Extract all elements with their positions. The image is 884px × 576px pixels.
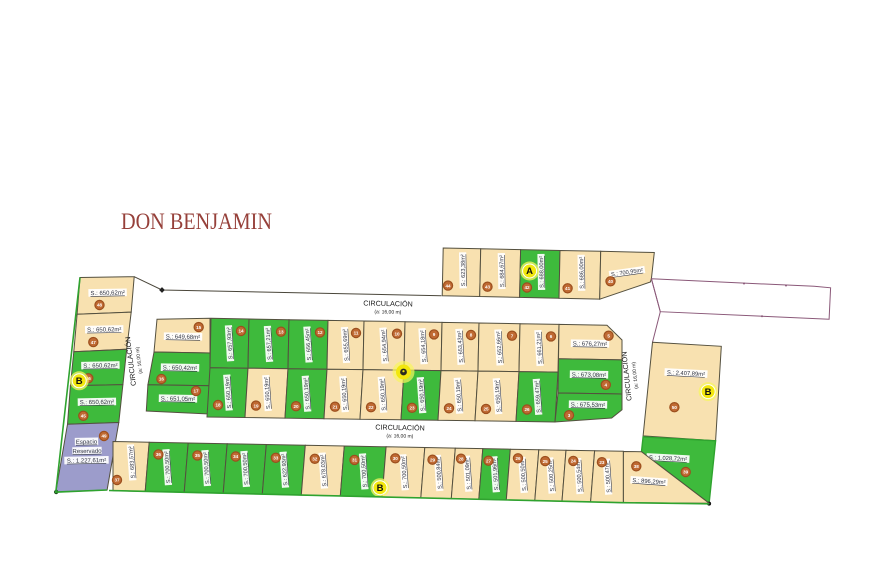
svg-text:S.: 650,62m²: S.: 650,62m² (87, 327, 121, 334)
svg-text:S.: 673,08m²: S.: 673,08m² (572, 372, 606, 379)
svg-text:13: 13 (278, 329, 284, 334)
svg-text:31: 31 (352, 458, 358, 463)
svg-text:S.: 650,62m²: S.: 650,62m² (83, 363, 117, 370)
svg-text:9: 9 (433, 332, 436, 337)
svg-text:23: 23 (599, 460, 605, 465)
svg-text:36: 36 (156, 452, 162, 457)
svg-text:28: 28 (458, 456, 464, 461)
svg-text:S.: 684,67m²: S.: 684,67m² (499, 255, 506, 287)
svg-text:49: 49 (101, 434, 107, 439)
svg-text:6: 6 (550, 334, 553, 339)
svg-text:CIRCULACIÓN: CIRCULACIÓN (363, 298, 413, 308)
svg-text:S.: 623,38m²: S.: 623,38m² (461, 254, 468, 286)
svg-text:24: 24 (446, 406, 452, 411)
svg-text:41: 41 (565, 286, 571, 291)
svg-text:24: 24 (571, 459, 577, 464)
svg-text:S.: 686,00m²: S.: 686,00m² (579, 257, 586, 289)
svg-text:33: 33 (273, 456, 279, 461)
svg-text:Reservado: Reservado (72, 449, 102, 456)
svg-text:16: 16 (159, 377, 165, 382)
svg-text:42: 42 (524, 285, 530, 290)
svg-text:(a: 16,00 m): (a: 16,00 m) (386, 433, 413, 440)
svg-text:S.: 651,05m²: S.: 651,05m² (161, 396, 195, 403)
svg-text:26: 26 (524, 407, 530, 412)
svg-text:37: 37 (114, 478, 120, 483)
svg-text:Espacio: Espacio (76, 440, 98, 446)
svg-text:32: 32 (312, 457, 318, 462)
svg-text:S.: 676,27m²: S.: 676,27m² (573, 341, 607, 348)
svg-text:17: 17 (193, 389, 199, 394)
svg-text:39: 39 (683, 470, 689, 475)
svg-text:4: 4 (605, 383, 608, 388)
svg-text:10: 10 (394, 331, 400, 336)
svg-text:27: 27 (486, 458, 492, 463)
svg-text:30: 30 (393, 456, 399, 461)
svg-text:DON BENJAMIN: DON BENJAMIN (121, 208, 272, 235)
svg-text:3: 3 (568, 413, 571, 418)
svg-text:40: 40 (608, 279, 614, 284)
svg-text:(a: 16,00 m): (a: 16,00 m) (374, 309, 401, 316)
svg-text:21: 21 (332, 404, 338, 409)
svg-text:S.: 649,68m²: S.: 649,68m² (166, 334, 200, 341)
svg-text:8: 8 (470, 333, 473, 338)
svg-text:CIRCULACIÓN: CIRCULACIÓN (375, 422, 425, 432)
svg-text:S.: 675,53m²: S.: 675,53m² (571, 402, 605, 409)
svg-text:S.: 650,42m²: S.: 650,42m² (163, 365, 197, 372)
svg-text:14: 14 (238, 329, 244, 334)
svg-text:A: A (526, 266, 533, 277)
svg-text:26: 26 (515, 456, 521, 461)
svg-text:S.: 650,62m²: S.: 650,62m² (80, 400, 114, 407)
svg-text:15: 15 (196, 325, 202, 330)
svg-text:38: 38 (634, 464, 640, 469)
svg-text:7: 7 (511, 333, 514, 338)
svg-text:45: 45 (81, 414, 87, 419)
svg-text:23: 23 (409, 406, 415, 411)
svg-text:25: 25 (483, 407, 489, 412)
svg-text:B: B (76, 376, 83, 387)
svg-text:S.: 1.227,61m²: S.: 1.227,61m² (67, 458, 106, 465)
svg-text:29: 29 (430, 457, 436, 462)
svg-text:44: 44 (445, 283, 451, 288)
svg-text:11: 11 (354, 331, 359, 336)
svg-text:B: B (377, 483, 384, 494)
svg-text:48: 48 (97, 303, 103, 308)
svg-text:20: 20 (293, 404, 299, 409)
svg-text:B: B (705, 387, 712, 398)
svg-text:S.: 650,62m²: S.: 650,62m² (90, 291, 124, 298)
svg-text:34: 34 (233, 454, 239, 459)
svg-text:43: 43 (485, 284, 491, 289)
svg-text:47: 47 (91, 340, 97, 345)
svg-text:19: 19 (253, 403, 259, 408)
svg-text:18: 18 (215, 403, 221, 408)
svg-text:22: 22 (368, 405, 374, 410)
svg-text:50: 50 (672, 405, 678, 410)
svg-text:12: 12 (317, 330, 323, 335)
svg-text:25: 25 (543, 459, 549, 464)
svg-text:5: 5 (607, 333, 610, 338)
svg-text:S.: 688,00m²: S.: 688,00m² (539, 256, 546, 288)
svg-text:35: 35 (195, 453, 201, 458)
